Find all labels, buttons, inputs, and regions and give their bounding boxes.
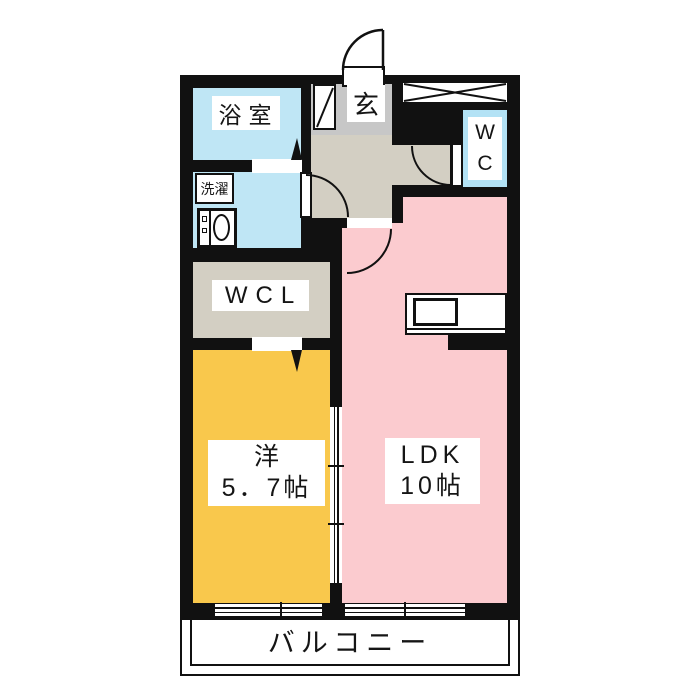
wcl-label: WCL <box>212 280 309 311</box>
washing-machine-button <box>202 228 207 233</box>
ldk-door-sill <box>347 218 392 228</box>
shoe-cabinet-icon <box>313 84 336 130</box>
western-room-label: 洋 5．7帖 <box>208 440 325 506</box>
kitchen-counter-edge-line <box>407 328 505 330</box>
washing-machine-icon <box>197 208 237 248</box>
bath-label: 浴室 <box>212 96 280 130</box>
room-hallway-wc-corridor <box>392 145 450 185</box>
ldk-name: LDK <box>401 440 465 471</box>
balcony-label: バルコニー <box>250 622 450 658</box>
washroom-door-leaf <box>300 172 312 218</box>
ldk-label: LDK 10帖 <box>385 438 480 504</box>
laundry-label: 洗濯 <box>195 173 234 204</box>
sliding-door-partition <box>330 407 342 583</box>
room-ldk <box>342 197 507 603</box>
western-room-name: 洋 <box>254 442 279 473</box>
kitchen-counter-icon <box>405 293 507 335</box>
ldk-size: 10帖 <box>400 471 465 502</box>
wcl-door-opening <box>252 337 302 351</box>
entrance-door-sill <box>342 66 385 87</box>
wc-door-leaf <box>451 143 463 187</box>
entrance-door-arc <box>343 30 383 70</box>
washing-machine-button <box>202 216 207 222</box>
washing-machine-drum-icon <box>213 214 230 241</box>
entrance-label: 玄 <box>347 85 385 122</box>
wc-label: WC <box>468 117 502 180</box>
window-ldk <box>345 604 465 616</box>
pipe-space-box <box>402 82 508 103</box>
room-hallway <box>311 135 392 218</box>
western-room-size: 5．7帖 <box>222 473 312 504</box>
floorplan: バルコニー 浴室 洗濯 玄 WC WCL 洋 5．7帖 LDK 10帖 <box>0 0 700 700</box>
washing-machine-divider <box>209 211 211 245</box>
wall-kitchen-stub <box>448 335 520 350</box>
sink-icon <box>413 298 458 326</box>
window-western-room <box>215 604 322 616</box>
bath-door-opening <box>252 159 302 173</box>
wall-jog-hallway-ldk <box>392 197 403 223</box>
